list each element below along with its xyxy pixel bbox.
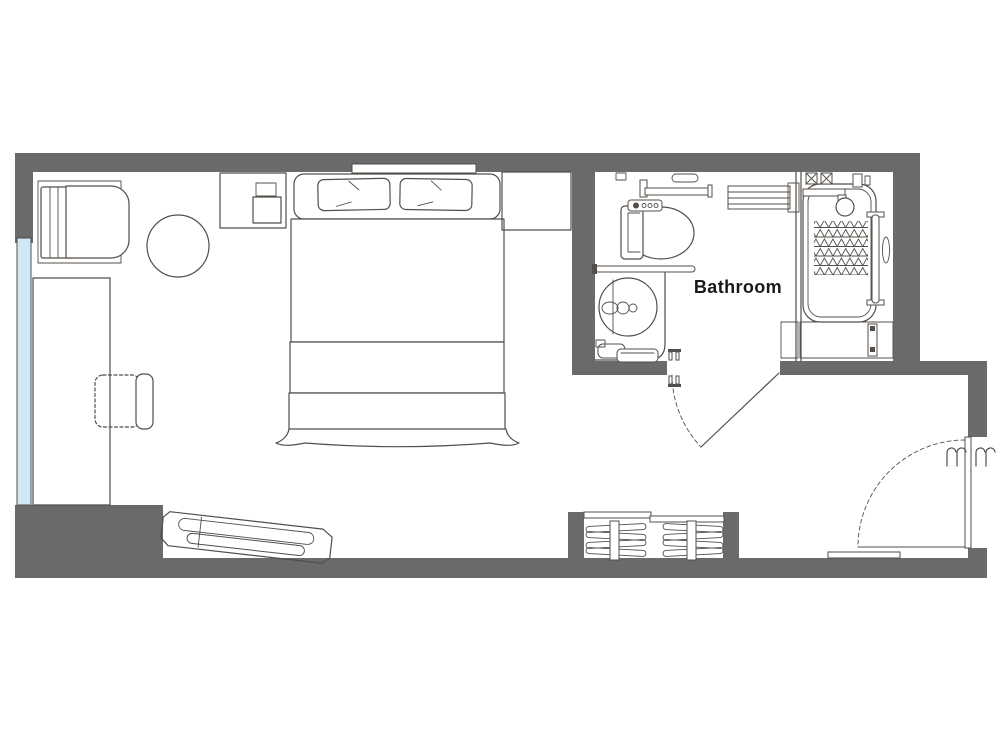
floor-plan-page: Bathroom <box>0 0 1000 750</box>
pillow <box>318 178 391 211</box>
desk <box>33 278 110 505</box>
nightstand-left <box>220 173 286 228</box>
floor-plan: Bathroom <box>0 0 1000 750</box>
wall-fitting <box>883 237 890 263</box>
luggage-rack <box>584 512 724 560</box>
blanket-end <box>289 393 505 429</box>
angled-bench <box>160 511 333 564</box>
door-handle <box>668 349 681 360</box>
wall-stub-right <box>723 512 739 558</box>
wall-bathroom-bottom-left <box>572 361 667 375</box>
door-leaf <box>965 437 971 548</box>
entrance-door <box>828 437 995 558</box>
toilet-control-panel <box>628 200 662 211</box>
desk-chair <box>95 374 153 429</box>
blanket-drape <box>276 429 519 447</box>
door-handle <box>947 448 966 466</box>
wall-bottom <box>15 558 987 578</box>
duckboard <box>781 322 893 358</box>
bathroom-label: Bathroom <box>694 277 782 297</box>
door-handle <box>668 376 681 387</box>
door-handle <box>976 448 995 466</box>
duvet <box>291 219 504 342</box>
blanket-fold <box>290 342 504 393</box>
towel-shelf <box>728 183 799 212</box>
round-side-table <box>147 215 209 277</box>
toilet <box>621 200 694 259</box>
wash-basin <box>599 278 657 336</box>
wall-corridor-top <box>780 361 987 375</box>
threshold <box>828 552 900 558</box>
rack-stand <box>586 521 646 560</box>
wall-stub-left <box>568 512 584 558</box>
rack-stand <box>663 521 723 560</box>
window <box>17 238 31 505</box>
wall-entry-lower <box>968 548 987 578</box>
wall-left-upper <box>15 153 33 243</box>
grab-bar <box>640 180 712 197</box>
lounge-chair <box>38 181 129 263</box>
headboard-shelf <box>352 164 476 173</box>
wall-bathroom-right <box>893 172 920 364</box>
nightstand-right <box>502 172 571 230</box>
door-swing-arc <box>858 440 965 547</box>
bathtub-water-pattern <box>814 221 868 275</box>
towel-ring <box>672 174 698 182</box>
bathroom: Bathroom <box>592 172 893 447</box>
door-leaf <box>701 373 779 447</box>
pillow <box>400 178 473 210</box>
bath-stool <box>617 349 658 362</box>
bathroom-door <box>668 349 779 447</box>
towel-bar <box>592 264 695 274</box>
double-bed <box>276 164 519 447</box>
wall-hook <box>616 173 626 180</box>
wall-bathroom-left <box>572 172 595 375</box>
wall-entry-upper <box>968 375 987 437</box>
